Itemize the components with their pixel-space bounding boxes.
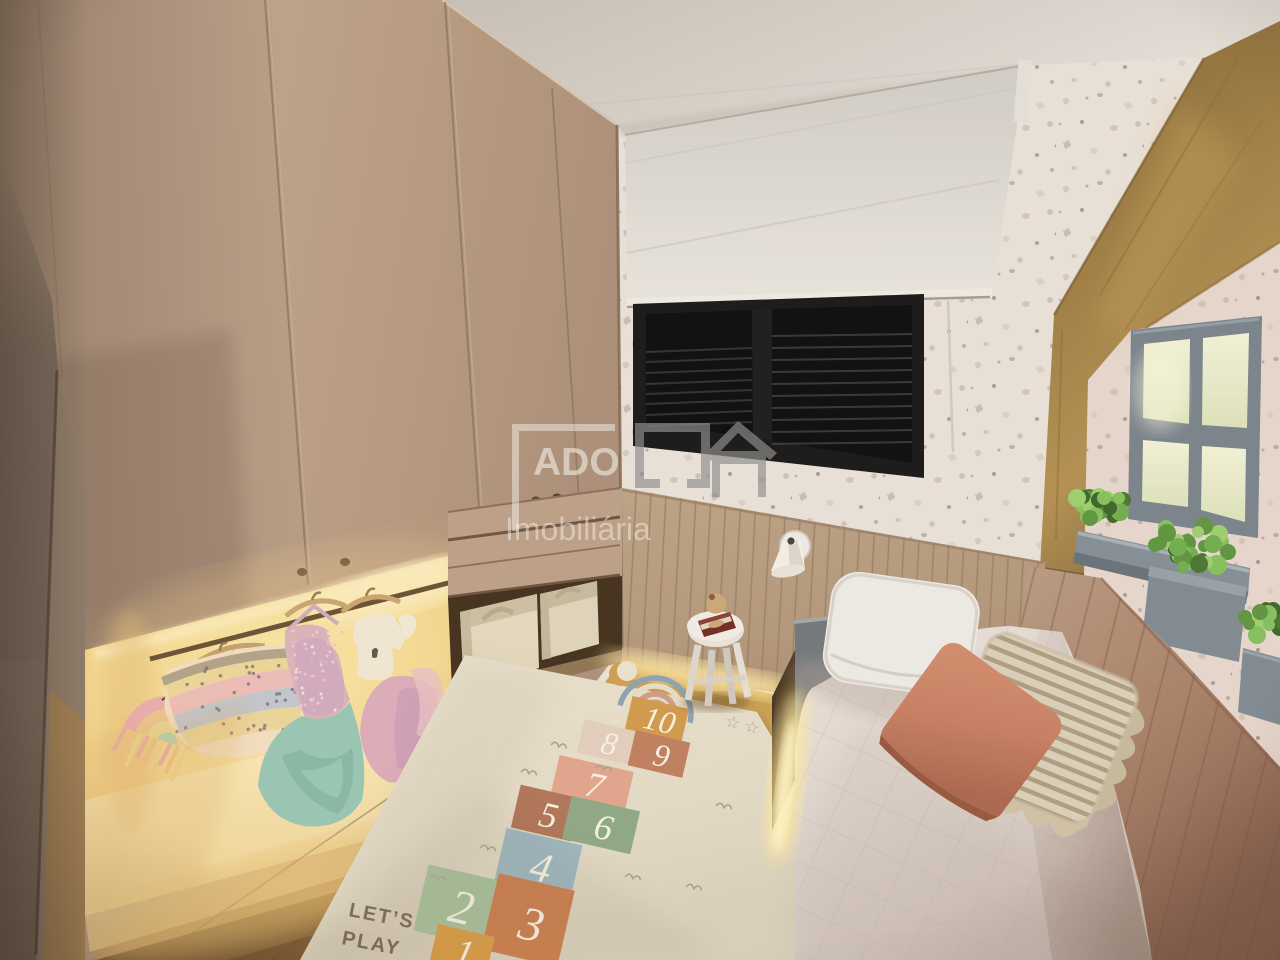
- svg-text:ADO: ADO: [533, 441, 620, 484]
- svg-text:Imobiliária: Imobiliária: [505, 511, 651, 547]
